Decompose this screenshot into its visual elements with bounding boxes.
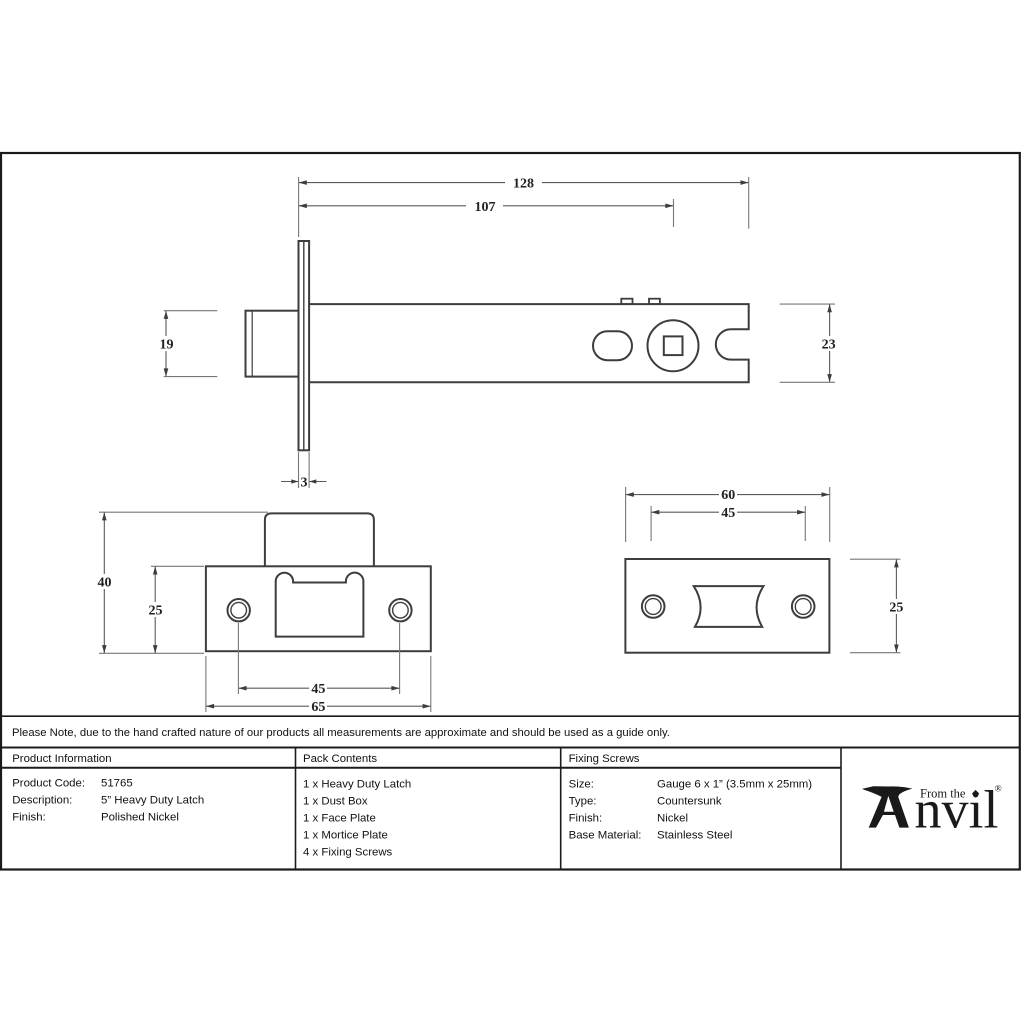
- svg-text:19: 19: [160, 337, 174, 352]
- svg-text:nvil: nvil: [915, 780, 999, 840]
- svg-text:Stainless Steel: Stainless Steel: [657, 829, 732, 841]
- svg-text:®: ®: [995, 784, 1002, 795]
- svg-text:25: 25: [889, 601, 903, 616]
- svg-text:45: 45: [311, 682, 325, 697]
- svg-text:Please Note, due to the hand c: Please Note, due to the hand crafted nat…: [12, 727, 670, 739]
- svg-text:60: 60: [721, 488, 735, 503]
- svg-text:Nickel: Nickel: [657, 812, 688, 824]
- svg-text:Countersunk: Countersunk: [657, 795, 722, 807]
- svg-text:5” Heavy Duty Latch: 5” Heavy Duty Latch: [101, 795, 204, 807]
- svg-text:Finish:: Finish:: [569, 812, 603, 824]
- svg-text:Pack Contents: Pack Contents: [303, 753, 377, 765]
- svg-text:45: 45: [721, 506, 735, 521]
- svg-text:Gauge 6 x 1” (3.5mm x 25mm): Gauge 6 x 1” (3.5mm x 25mm): [657, 779, 812, 791]
- svg-text:128: 128: [513, 177, 534, 192]
- svg-text:1 x Mortice Plate: 1 x Mortice Plate: [303, 829, 388, 841]
- svg-text:1 x Face Plate: 1 x Face Plate: [303, 812, 376, 824]
- svg-text:Fixing Screws: Fixing Screws: [569, 753, 640, 765]
- svg-text:107: 107: [475, 200, 496, 215]
- svg-text:1 x Heavy Duty Latch: 1 x Heavy Duty Latch: [303, 779, 411, 791]
- svg-text:Product Information: Product Information: [12, 753, 111, 765]
- svg-text:Finish:: Finish:: [12, 812, 46, 824]
- svg-text:1 x Dust Box: 1 x Dust Box: [303, 795, 368, 807]
- svg-text:3: 3: [301, 476, 308, 491]
- svg-text:Description:: Description:: [12, 795, 72, 807]
- svg-text:Size:: Size:: [569, 779, 594, 791]
- svg-text:65: 65: [311, 700, 325, 715]
- svg-text:Base Material:: Base Material:: [569, 829, 642, 841]
- svg-text:51765: 51765: [101, 778, 133, 790]
- svg-text:40: 40: [98, 576, 112, 591]
- svg-text:25: 25: [149, 603, 163, 618]
- svg-text:Product Code:: Product Code:: [12, 778, 85, 790]
- svg-text:4 x Fixing Screws: 4 x Fixing Screws: [303, 846, 393, 858]
- svg-text:Type:: Type:: [569, 795, 597, 807]
- svg-text:Polished Nickel: Polished Nickel: [101, 812, 179, 824]
- svg-text:23: 23: [822, 337, 836, 352]
